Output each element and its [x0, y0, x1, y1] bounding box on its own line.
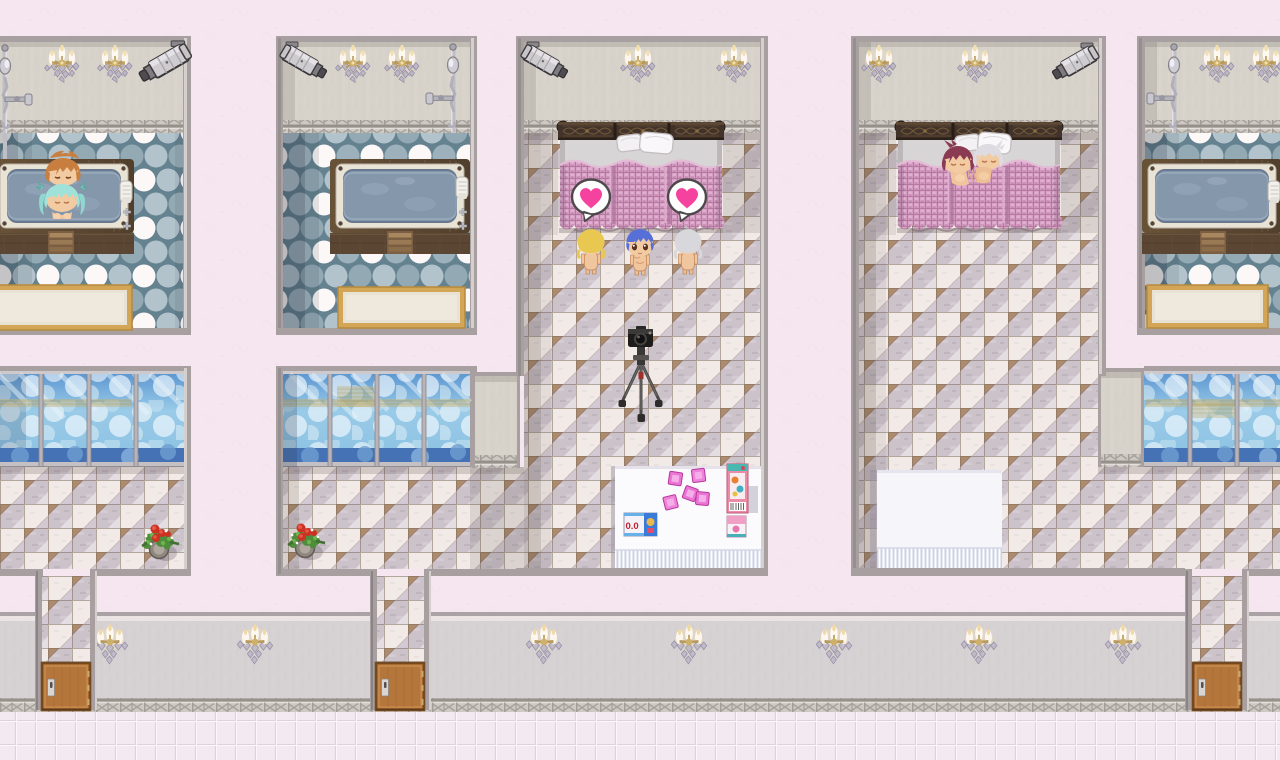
- svg-text:0.0: 0.0: [626, 521, 639, 532]
